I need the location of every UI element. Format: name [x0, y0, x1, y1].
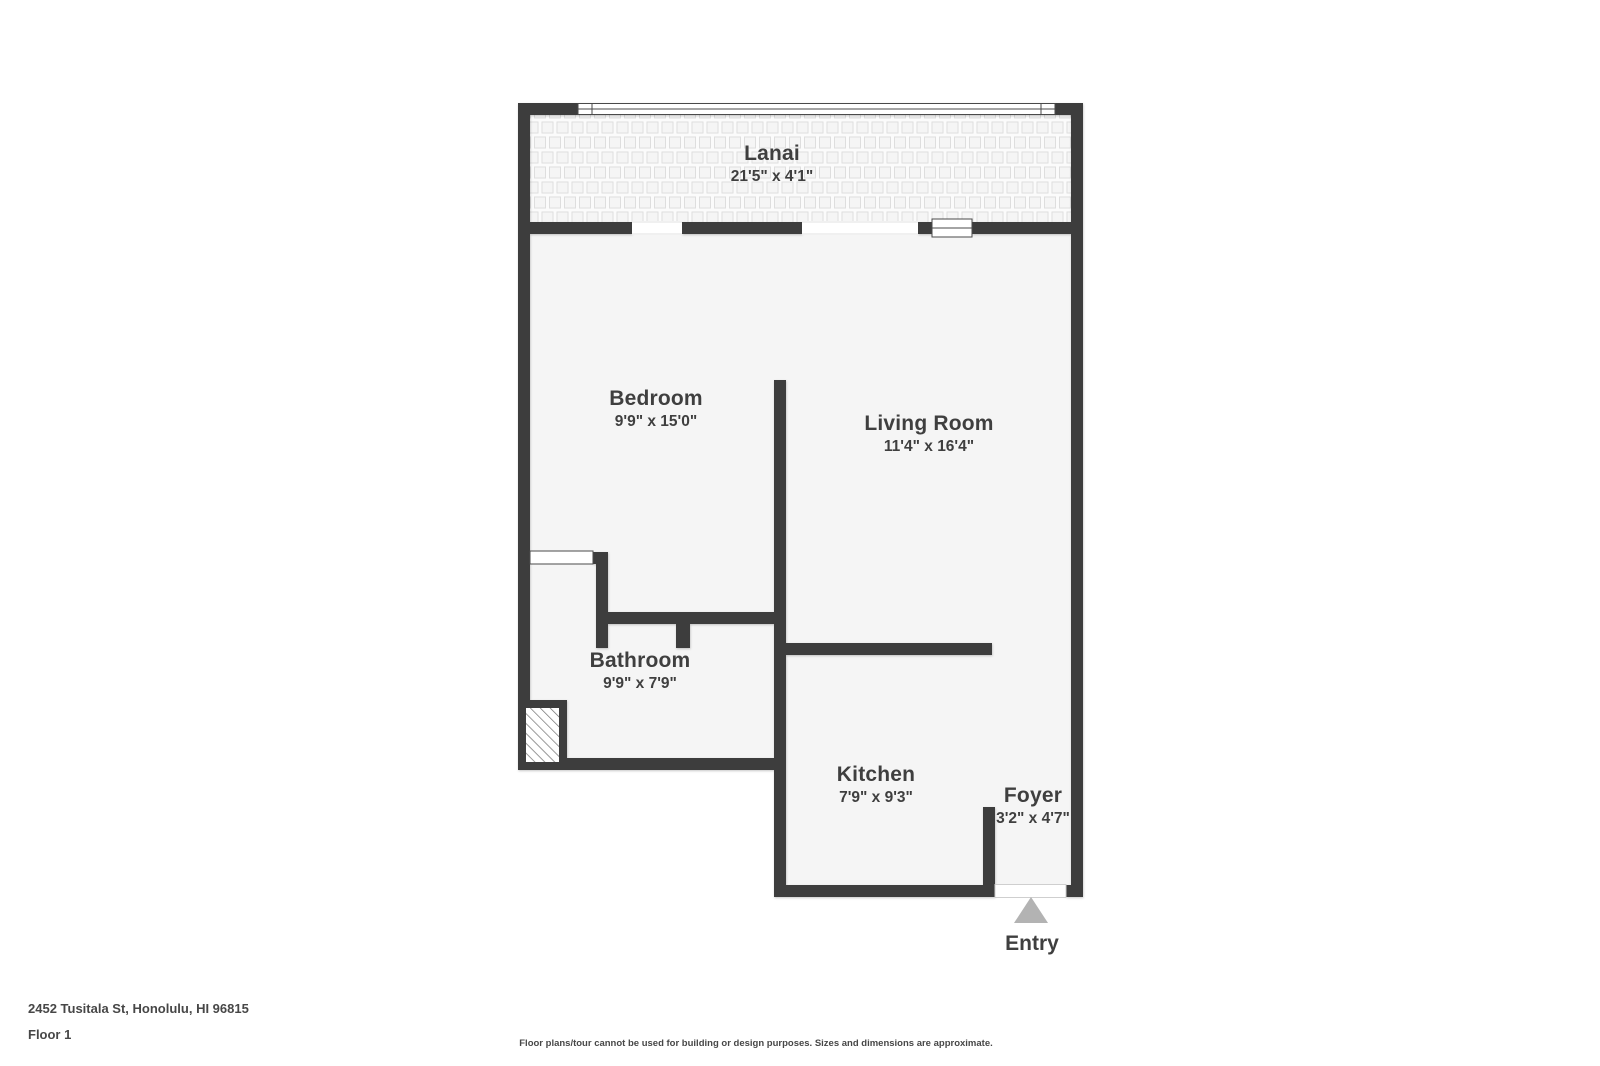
- room-dims: 9'9" x 7'9": [590, 673, 691, 695]
- room-label-bathroom: Bathroom 9'9" x 7'9": [590, 648, 691, 695]
- lanai-top-window-icon: [578, 104, 1055, 115]
- room-name: Foyer: [996, 783, 1070, 808]
- room-dims: 9'9" x 15'0": [609, 411, 703, 433]
- room-label-foyer: Foyer 3'2" x 4'7": [996, 783, 1070, 830]
- room-label-bedroom: Bedroom 9'9" x 15'0": [609, 386, 703, 433]
- entry-opening: [995, 885, 1066, 898]
- property-address: 2452 Tusitala St, Honolulu, HI 96815: [28, 1001, 249, 1016]
- room-name: Kitchen: [837, 762, 915, 787]
- room-label-lanai: Lanai 21'5" x 4'1": [731, 141, 813, 188]
- room-dims: 3'2" x 4'7": [996, 808, 1070, 830]
- room-label-living-room: Living Room 11'4" x 16'4": [864, 411, 993, 458]
- lanai-window-icon: [932, 219, 972, 237]
- bedroom-window-icon: [530, 551, 593, 564]
- disclaimer-text: Floor plans/tour cannot be used for buil…: [519, 1038, 993, 1049]
- room-dims: 11'4" x 16'4": [864, 436, 993, 458]
- room-name: Living Room: [864, 411, 993, 436]
- floor-number: Floor 1: [28, 1027, 71, 1042]
- entry-arrow-icon: [1014, 897, 1048, 923]
- hatched-shaft: [526, 708, 559, 762]
- room-name: Lanai: [731, 141, 813, 166]
- room-dims: 7'9" x 9'3": [837, 787, 915, 809]
- room-name: Bathroom: [590, 648, 691, 673]
- room-name: Bedroom: [609, 386, 703, 411]
- room-label-kitchen: Kitchen 7'9" x 9'3": [837, 762, 915, 809]
- room-dims: 21'5" x 4'1": [731, 166, 813, 188]
- entry-label: Entry: [1005, 931, 1059, 956]
- floor-plan-page: Lanai 21'5" x 4'1" Bedroom 9'9" x 15'0" …: [0, 0, 1600, 1066]
